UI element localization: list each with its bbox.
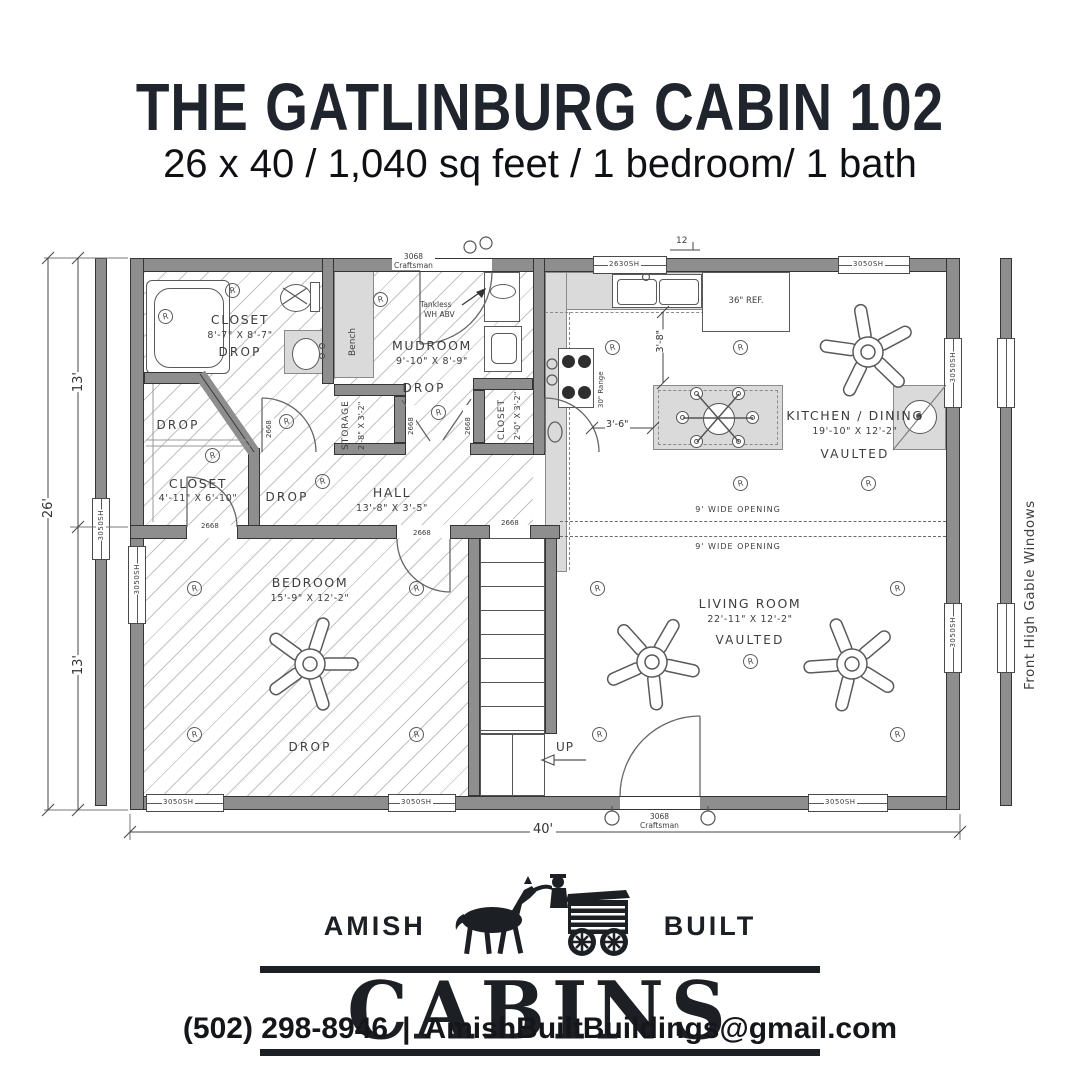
bathtub-basin xyxy=(154,288,224,368)
dim-depth-lower: 13' xyxy=(68,655,89,675)
room-name-storage: STORAGE xyxy=(341,392,351,450)
room-dims-living: 22'-11" X 12'-2" xyxy=(707,614,792,625)
room-name-left-closet: CLOSET xyxy=(169,476,227,491)
door-label: 2668 xyxy=(200,522,220,530)
window-label: 3050SH xyxy=(824,798,857,806)
dim-depth-total: 26' xyxy=(38,498,59,518)
recessed-light-symbol: R xyxy=(742,653,759,670)
toilet-tank xyxy=(310,282,320,312)
wide-opening-label-bottom: 9' WIDE OPENING xyxy=(695,542,781,551)
door-label: 2668 xyxy=(500,519,520,527)
window-label: 3050SH xyxy=(852,260,885,268)
wide-opening-line-2 xyxy=(560,536,946,537)
recessed-light-symbol: R xyxy=(591,726,608,743)
room-ceiling-living: VAULTED xyxy=(715,633,784,647)
staircase xyxy=(480,538,545,734)
room-dims-bath-closet: 8'-7" X 8'-7" xyxy=(207,330,272,341)
dim-island-clearance: 3'-6" xyxy=(605,419,630,430)
recessed-light-symbol: R xyxy=(732,339,749,356)
wall-bath-bottom xyxy=(144,372,206,384)
wall-mudroom-kitchen xyxy=(533,258,545,455)
page-subtitle: 26 x 40 / 1,040 sq feet / 1 bedroom/ 1 b… xyxy=(0,142,1080,187)
room-name-bedroom: BEDROOM xyxy=(272,575,348,590)
stair-landing-divider xyxy=(512,734,513,796)
roof-pitch-label: 12 xyxy=(676,236,687,246)
stool xyxy=(676,411,689,424)
logo-word-built: BUILT xyxy=(664,911,756,964)
tankless-label-2: WH ABV xyxy=(424,310,455,319)
wall-vestibule xyxy=(248,448,260,532)
recessed-light-symbol: R xyxy=(860,475,877,492)
stool xyxy=(732,387,745,400)
dim-depth-upper: 13' xyxy=(68,372,89,392)
wall-stairs-left xyxy=(468,538,480,796)
sink-basin xyxy=(659,279,699,305)
window-label: 3050SH xyxy=(948,352,958,383)
room-dims-bedroom: 15'-9" X 12'-2" xyxy=(271,593,350,604)
wall-bath-mudroom xyxy=(322,258,334,384)
bench-label: Bench xyxy=(348,290,358,356)
recessed-light-symbol: R xyxy=(889,726,906,743)
room-dims-left-closet: 4'-11" X 6'-10" xyxy=(159,493,238,504)
door-label: 2668 xyxy=(412,529,432,537)
room-ceiling-bath-closet: DROP xyxy=(218,345,261,359)
vanity-sink xyxy=(292,338,320,370)
door-label: 2668 xyxy=(463,405,473,435)
range-label: 30" Range xyxy=(597,352,605,408)
wall-mid-b xyxy=(237,525,397,539)
recessed-light-symbol: R xyxy=(889,580,906,597)
room-name-kitchen: KITCHEN / DINING xyxy=(786,408,923,423)
room-dims-kitchen-closet: 2'-0" X 3'-2" xyxy=(513,392,522,440)
wide-opening-label-top: 9' WIDE OPENING xyxy=(695,505,781,514)
door-style: Craftsman xyxy=(394,261,433,270)
wall-kitchen-closet-top xyxy=(473,378,533,390)
door-size: 3068 xyxy=(394,252,433,261)
gable-note: Front High Gable Windows xyxy=(1022,350,1038,690)
door-gap-entry xyxy=(620,797,700,809)
window-label: 3050SH xyxy=(948,617,958,648)
washer-drum xyxy=(491,333,517,364)
front-gable-window-1 xyxy=(997,338,1015,408)
door-size: 3068 xyxy=(640,812,679,821)
email-address: AmishBuiltBuildings@gmail.com xyxy=(424,1012,897,1045)
door-label: 2668 xyxy=(406,405,416,435)
phone-number: (502) 298-8946 xyxy=(183,1012,388,1045)
front-gable-window-2 xyxy=(997,603,1015,673)
burner xyxy=(562,355,575,368)
dim-width-total: 40' xyxy=(530,822,556,837)
mudroom-door-label: 3068 Craftsman xyxy=(392,252,435,270)
room-ceiling-kitchen: VAULTED xyxy=(820,447,889,461)
room-dims-hall: 13'-8" X 3'-5" xyxy=(356,503,428,514)
logo-word-amish: AMISH xyxy=(324,911,426,964)
recessed-light-symbol: R xyxy=(589,580,606,597)
contact-separator: | xyxy=(402,1012,410,1045)
wall-mid-c xyxy=(450,525,490,539)
wall-mid-a xyxy=(130,525,187,539)
tankless-label-1: Tankless xyxy=(420,300,452,309)
window-label: 3050SH xyxy=(400,798,433,806)
page-title: THE GATLINBURG CABIN 102 xyxy=(0,68,1080,146)
ceiling-drop-vestibule: DROP xyxy=(156,418,199,432)
wall-mid-d xyxy=(530,525,560,539)
room-ceiling-bedroom: DROP xyxy=(288,740,331,754)
dim-counter-clearance: 3'-8" xyxy=(654,330,667,353)
contact-line: (502) 298-8946|AmishBuiltBuildings@gmail… xyxy=(0,1012,1080,1046)
entry-door-label: 3068 Craftsman xyxy=(638,812,681,830)
wall-top xyxy=(130,258,960,272)
room-dims-kitchen: 19'-10" X 12'-2" xyxy=(812,426,897,437)
window-label: 2630SH xyxy=(608,260,641,268)
sink-basin xyxy=(617,279,657,305)
stool xyxy=(746,411,759,424)
cabin-floor-plan-poster: THE GATLINBURG CABIN 102 26 x 40 / 1,040… xyxy=(0,0,1080,1080)
up-arrow-icon xyxy=(540,752,590,768)
room-name-mudroom: MUDROOM xyxy=(392,338,472,353)
recessed-light-symbol: R xyxy=(604,339,621,356)
burner xyxy=(578,386,591,399)
wall-kitchen-closet-left xyxy=(473,390,485,443)
fridge-label: 36" REF. xyxy=(729,296,764,306)
horse-wagon-icon xyxy=(440,864,650,964)
room-dims-mudroom: 9'-10" X 8'-9" xyxy=(396,356,468,367)
door-style: Craftsman xyxy=(640,821,679,830)
window-label: 3050SH xyxy=(132,564,142,595)
room-name-bath-closet: CLOSET xyxy=(211,312,269,327)
island-table xyxy=(703,403,735,435)
tankless-cloud xyxy=(490,284,516,299)
room-name-living: LIVING ROOM xyxy=(699,596,802,611)
toilet xyxy=(280,284,312,312)
window-label: 3050SH xyxy=(162,798,195,806)
wide-opening-line-1 xyxy=(560,521,946,522)
room-name-hall: HALL xyxy=(373,485,411,500)
window-label: 3050SH xyxy=(96,510,106,541)
wall-stairs-right xyxy=(545,538,557,734)
stool xyxy=(690,435,703,448)
room-dims-storage: 2'-8" X 3'-2" xyxy=(357,396,366,450)
burner xyxy=(562,386,575,399)
stool xyxy=(690,387,703,400)
stool xyxy=(732,435,745,448)
burner xyxy=(578,355,591,368)
recessed-light-symbol: R xyxy=(732,475,749,492)
wall-storage-right xyxy=(394,396,406,443)
room-ceiling-mudroom: DROP xyxy=(402,381,445,395)
ceiling-drop-hall: DROP xyxy=(265,490,308,504)
room-name-kitchen-closet: CLOSET xyxy=(497,390,507,440)
door-label: 2668 xyxy=(264,408,274,438)
